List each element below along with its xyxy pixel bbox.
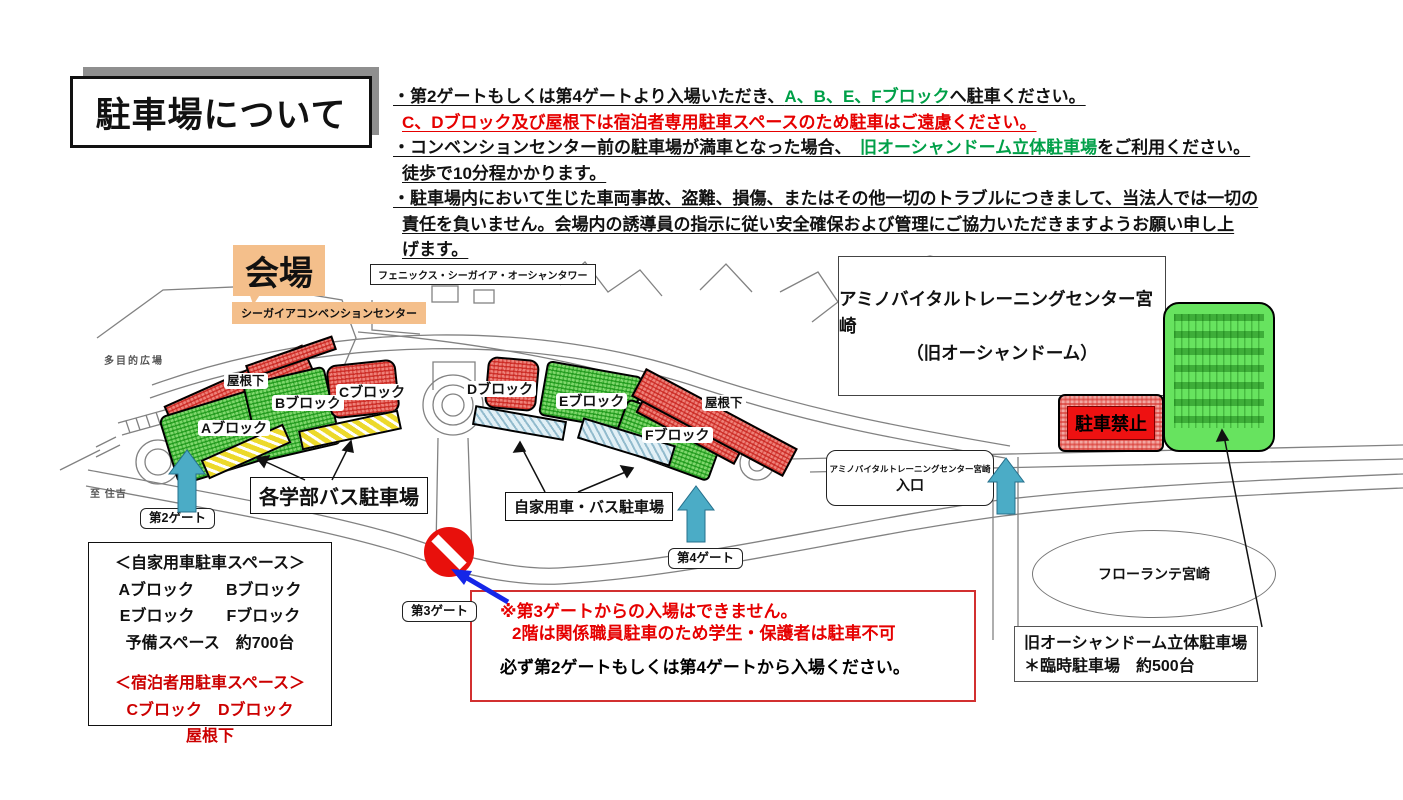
amino-center-box: アミノバイタルトレーニングセンター宮崎 （旧オーシャンドーム）	[838, 256, 1166, 396]
dome-parking-building	[1163, 302, 1275, 452]
private-parking-label: 自家用車・バス駐車場	[505, 492, 673, 521]
gate4-label: 第4ゲート	[668, 548, 743, 569]
page-title: 駐車場について	[70, 76, 372, 148]
parking-info-slide: 駐車場について ・第2ゲートもしくは第4ゲートより入場いただき、A、B、E、Fブ…	[0, 0, 1403, 800]
plaza-label: 多目的広場	[104, 352, 164, 367]
legend-box: ＜自家用車駐車スペース＞ Aブロック Bブロック Eブロック Fブロック 予備ス…	[88, 542, 332, 726]
no-parking-label: 駐車禁止	[1067, 406, 1155, 440]
sumiyoshi-label: 至 住吉	[90, 485, 127, 500]
note-line: 責任を負いません。会場内の誘導員の指示に従い安全確保および管理にご協力いただきま…	[393, 212, 1323, 238]
gate2-label: 第2ゲート	[140, 508, 215, 529]
block-d-label: Dブロック	[464, 381, 536, 397]
note-line: ・駐車場内において生じた車両事故、盗難、損傷、またはその他一切のトラブルにつきま…	[393, 186, 1323, 212]
note-line: ・コンベンションセンター前の駐車場が満車となった場合、 旧オーシャンドーム立体駐…	[393, 135, 1323, 161]
note-line: 徒歩で10分程かかります。	[393, 161, 1323, 187]
block-c-label: Cブロック	[336, 384, 408, 400]
dome-parking-box: 旧オーシャンドーム立体駐車場 ＊臨時駐車場 約500台	[1014, 626, 1258, 682]
block-e-label: Eブロック	[556, 393, 627, 409]
block-f-label: Fブロック	[642, 427, 713, 443]
florante-ellipse: フローランテ宮崎	[1032, 530, 1276, 618]
ocean-tower-label: フェニックス・シーガイア・オーシャンタワー	[370, 264, 596, 285]
gate3-label: 第3ゲート	[402, 601, 477, 622]
roof-left-label: 屋根下	[224, 373, 268, 389]
convention-center-label: シーガイアコンベンションセンター	[232, 302, 426, 324]
no-entry-icon	[424, 527, 474, 577]
amino-entrance-box: アミノバイタルトレーニングセンター宮崎 入口	[826, 450, 994, 506]
roof-right-label: 屋根下	[702, 395, 746, 411]
bus-parking-label: 各学部バス駐車場	[250, 477, 428, 514]
block-a-label: Aブロック	[198, 420, 270, 436]
no-parking-sign: 駐車禁止	[1058, 394, 1164, 452]
block-b-label: Bブロック	[272, 395, 344, 411]
notes-block: ・第2ゲートもしくは第4ゲートより入場いただき、A、B、E、Fブロックへ駐車くだ…	[393, 84, 1323, 263]
note-line: ・第2ゲートもしくは第4ゲートより入場いただき、A、B、E、Fブロックへ駐車くだ…	[393, 84, 1323, 110]
venue-label: 会場	[233, 245, 325, 296]
parking-rows	[1174, 314, 1264, 428]
note-line: C、Dブロック及び屋根下は宿泊者専用駐車スペースのため駐車はご遠慮ください。	[393, 110, 1323, 136]
warning-box: ※第3ゲートからの入場はできません。 2階は関係職員駐車のため学生・保護者は駐車…	[470, 590, 976, 702]
